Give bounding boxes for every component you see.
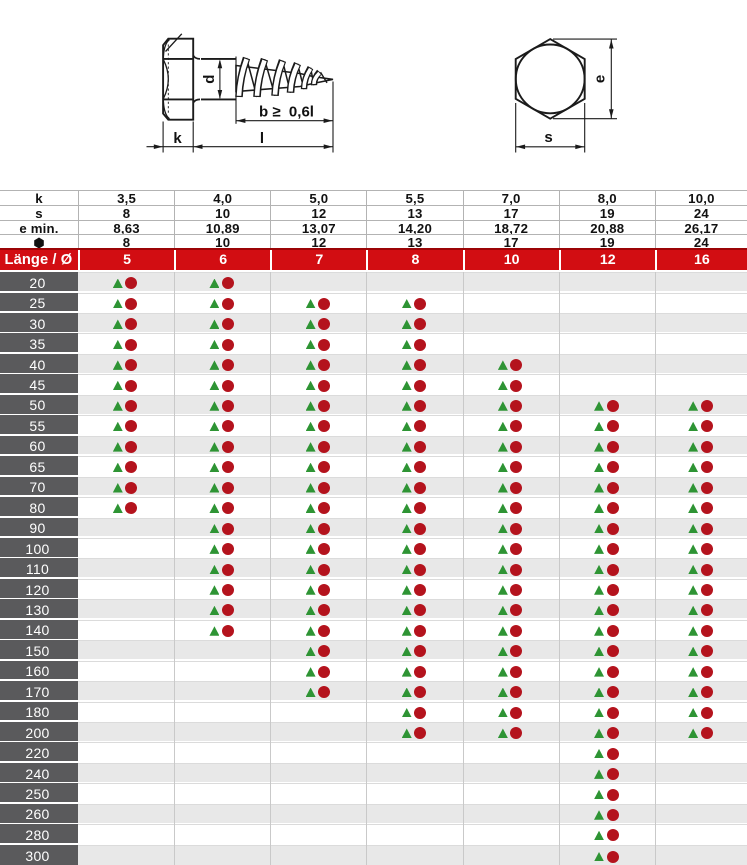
svg-text:b ≥ 0,6l: b ≥ 0,6l [259,104,314,121]
svg-text:l: l [260,130,264,147]
svg-text:k: k [173,130,182,147]
svg-text:s: s [544,129,552,146]
svg-text:e: e [592,75,609,83]
svg-text:d: d [201,75,218,84]
